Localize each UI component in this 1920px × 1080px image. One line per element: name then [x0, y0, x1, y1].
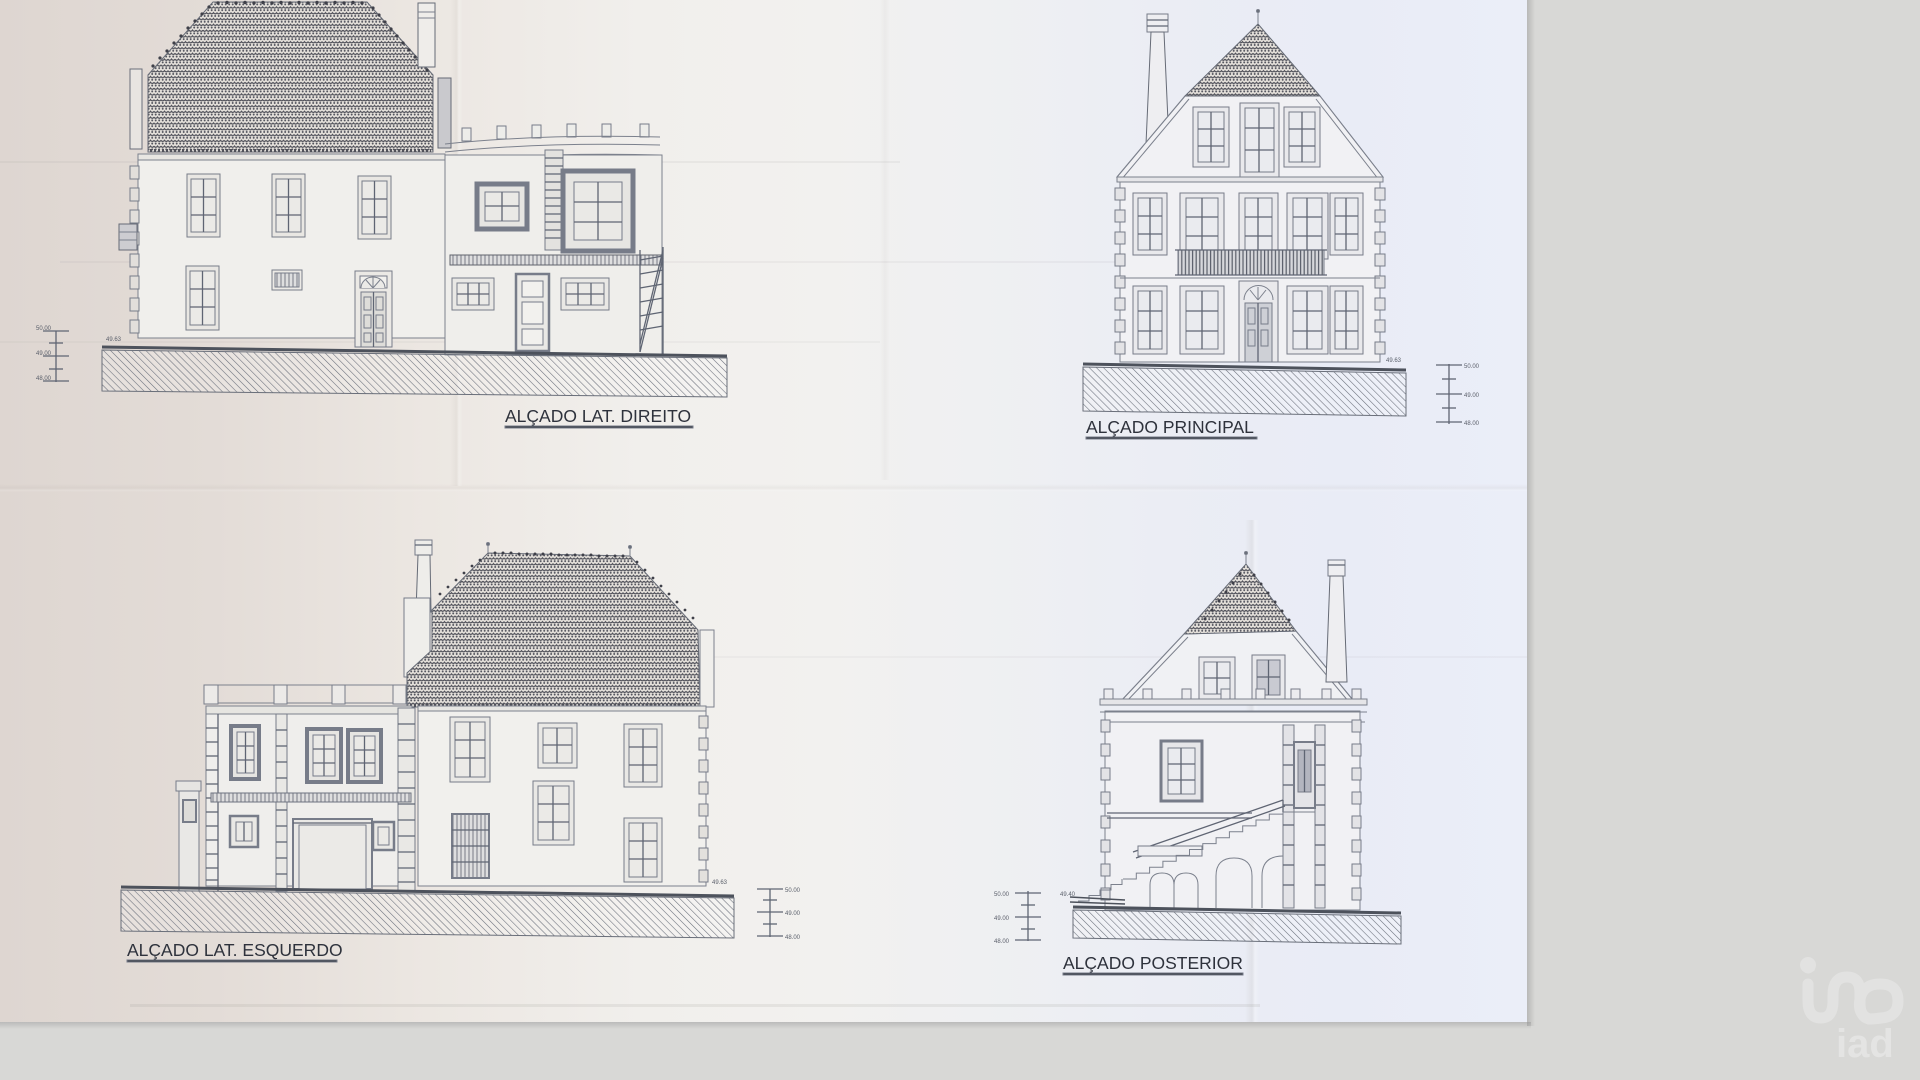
- svg-text:49.63: 49.63: [712, 880, 728, 886]
- svg-text:50.00: 50.00: [1464, 364, 1480, 370]
- svg-text:49.00: 49.00: [994, 916, 1010, 922]
- svg-text:48.00: 48.00: [36, 376, 52, 382]
- svg-text:ALÇADO LAT. ESQUERDO: ALÇADO LAT. ESQUERDO: [127, 940, 343, 960]
- svg-text:ALÇADO POSTERIOR: ALÇADO POSTERIOR: [1063, 953, 1243, 973]
- svg-text:49.00: 49.00: [785, 911, 801, 917]
- svg-text:49.40: 49.40: [1060, 892, 1076, 898]
- svg-text:50.00: 50.00: [785, 888, 801, 894]
- svg-text:48.00: 48.00: [994, 939, 1010, 945]
- svg-text:49.63: 49.63: [106, 337, 122, 343]
- svg-text:iad: iad: [1836, 1022, 1894, 1066]
- svg-text:49.00: 49.00: [1464, 393, 1480, 399]
- svg-text:50.00: 50.00: [36, 326, 52, 332]
- svg-text:49.00: 49.00: [36, 351, 52, 357]
- svg-text:48.00: 48.00: [785, 935, 801, 941]
- svg-text:48.00: 48.00: [1464, 421, 1480, 427]
- svg-text:50.00: 50.00: [994, 892, 1010, 898]
- svg-text:ALÇADO PRINCIPAL: ALÇADO PRINCIPAL: [1086, 417, 1254, 437]
- svg-text:ALÇADO LAT. DIREITO: ALÇADO LAT. DIREITO: [505, 406, 691, 426]
- svg-text:49.63: 49.63: [1386, 358, 1402, 364]
